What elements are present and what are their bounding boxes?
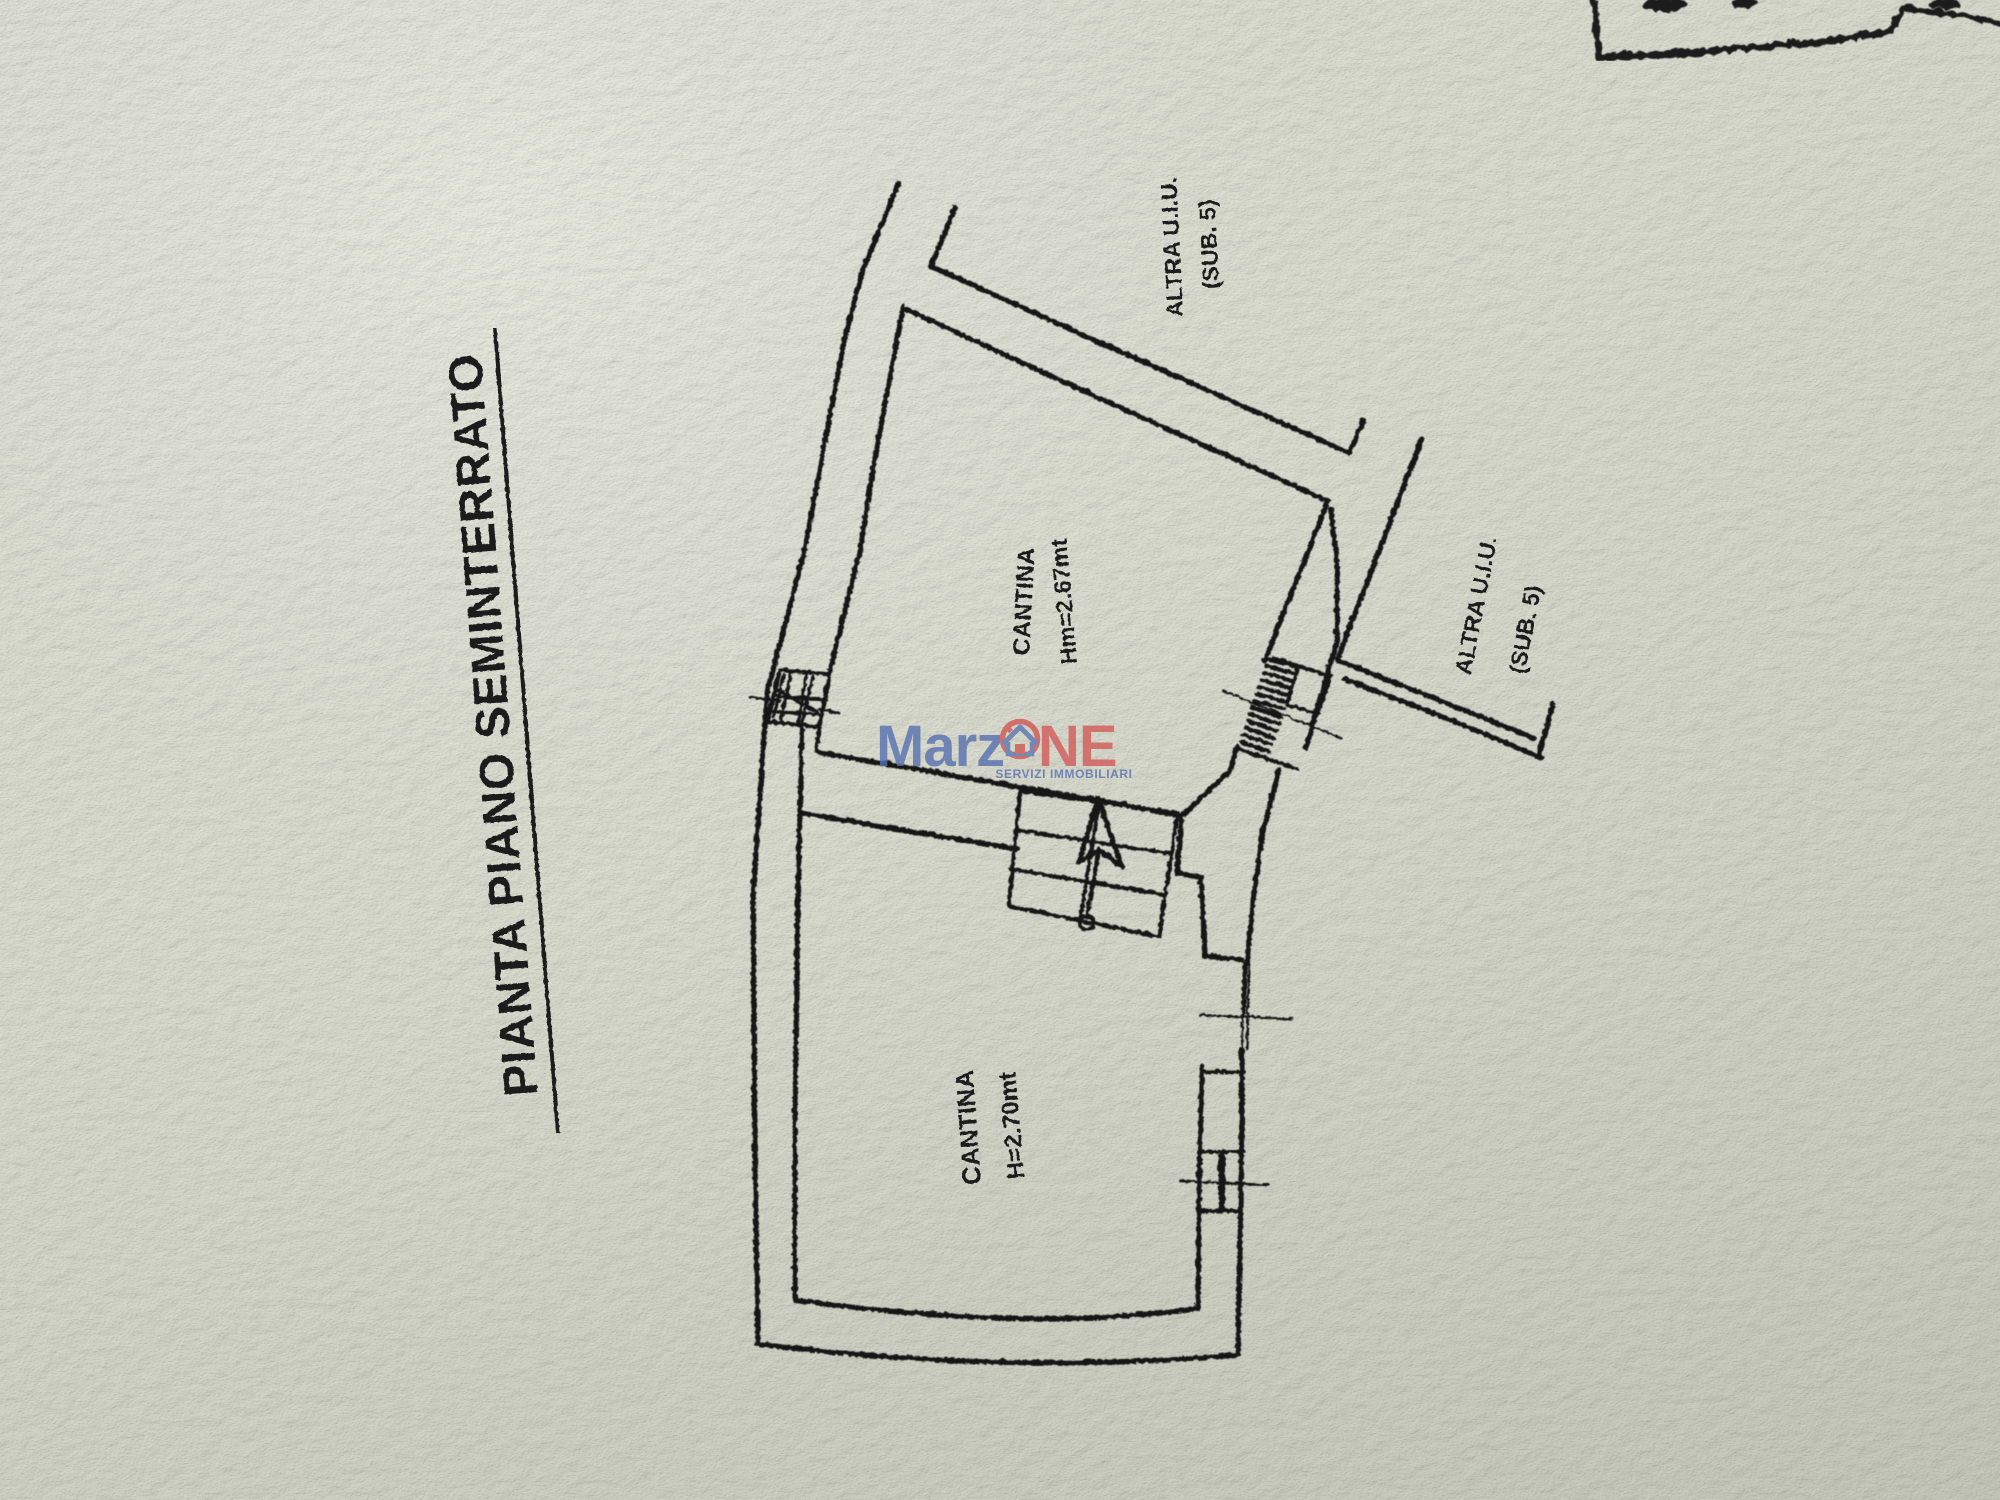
svg-text:(SUB. 5): (SUB. 5) xyxy=(1193,198,1224,289)
svg-text:SERVIZI IMMOBILIARI: SERVIZI IMMOBILIARI xyxy=(995,767,1132,781)
svg-text:Marz: Marz xyxy=(876,714,1004,779)
svg-text:CANTINA: CANTINA xyxy=(1007,546,1040,655)
